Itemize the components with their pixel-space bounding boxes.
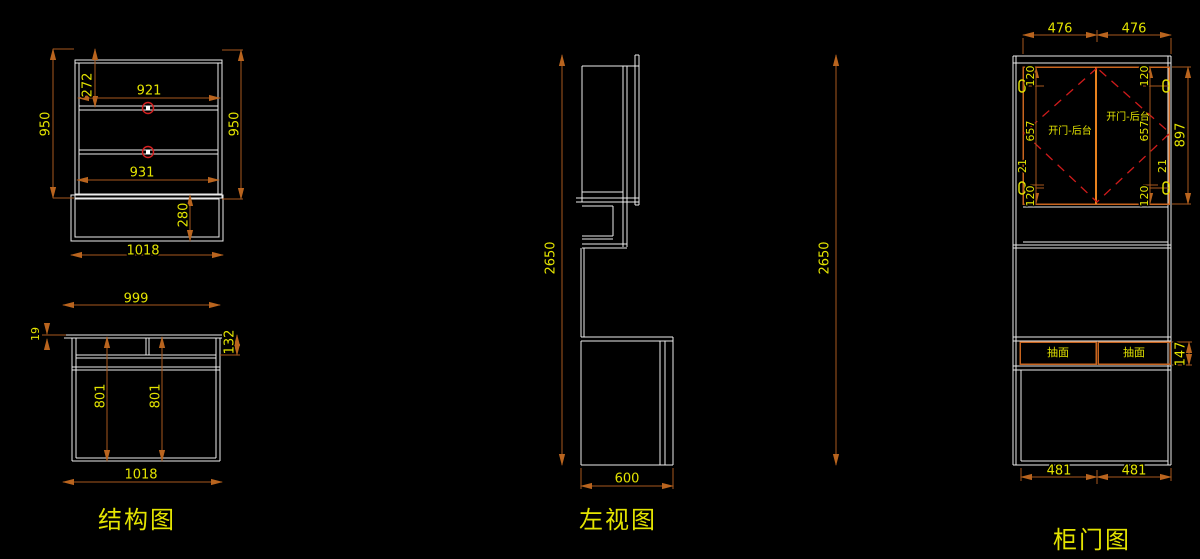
dim-132: 132: [223, 330, 238, 355]
drawer-label-left: 抽面: [1047, 345, 1069, 359]
side-view-lines: [576, 55, 673, 465]
cad-canvas: 950 950 272 921 931 280 1018 999 19 132 …: [0, 0, 1200, 559]
door-view-dim-lines: [836, 30, 1192, 484]
dim-left-21: 21: [1016, 159, 1029, 173]
dim-921: 921: [137, 84, 162, 99]
drawer-label-right: 抽面: [1123, 345, 1145, 359]
cad-drawing: 950 950 272 921 931 280 1018 999 19 132 …: [0, 0, 1200, 559]
dim-950-left: 950: [39, 112, 54, 137]
dim-147: 147: [1174, 342, 1189, 367]
dim-600: 600: [615, 472, 640, 487]
dim-931: 931: [130, 166, 155, 181]
drawer-fronts: [1020, 342, 1170, 364]
dim-801-left: 801: [94, 384, 109, 409]
door-view-title: 柜门图: [1053, 526, 1131, 554]
dim-1018-desk: 1018: [124, 468, 157, 483]
dim-801-right: 801: [149, 384, 164, 409]
dim-19: 19: [29, 327, 42, 341]
dim-476-left: 476: [1048, 22, 1073, 37]
dim-right-120-top: 120: [1138, 66, 1151, 87]
dim-left-657: 657: [1024, 121, 1037, 142]
side-view-dim-lines: [562, 55, 673, 489]
door-open-label-right: 开门-后台: [1106, 110, 1150, 123]
dim-481-right: 481: [1122, 464, 1147, 479]
dim-950-right: 950: [228, 112, 243, 137]
dim-897: 897: [1174, 123, 1189, 148]
dim-right-21: 21: [1156, 159, 1169, 173]
dim-272: 272: [81, 73, 96, 98]
structure-desk-lines: [64, 335, 222, 461]
dim-476-right: 476: [1122, 22, 1147, 37]
dim-left-120-bottom: 120: [1024, 186, 1037, 207]
door-open-label-left: 开门-后台: [1048, 124, 1092, 137]
dim-999: 999: [124, 292, 149, 307]
dim-1018-upper: 1018: [126, 244, 159, 259]
dim-right-657: 657: [1138, 121, 1151, 142]
dim-2650-side: 2650: [544, 241, 559, 274]
dim-481-left: 481: [1047, 464, 1072, 479]
dim-left-120-top: 120: [1024, 66, 1037, 87]
dim-right-120-bottom: 120: [1138, 186, 1151, 207]
dim-280: 280: [177, 203, 192, 228]
structure-view-title: 结构图: [98, 506, 176, 534]
side-view-title: 左视图: [579, 506, 657, 534]
shelf-pin-markers: [143, 103, 154, 158]
dim-2650-doors: 2650: [818, 241, 833, 274]
